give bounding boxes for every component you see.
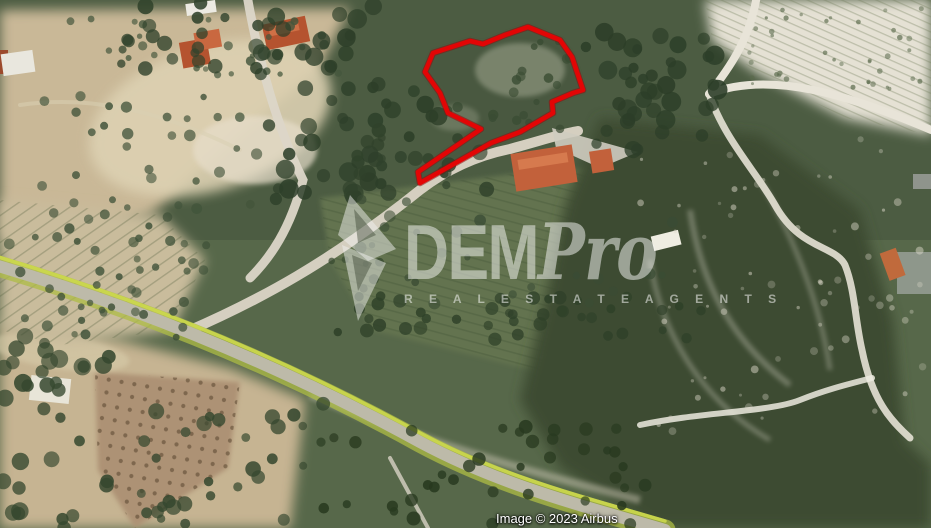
vegetation-blob — [681, 333, 691, 343]
vegetation-blob — [472, 452, 485, 465]
vegetation-blob — [196, 28, 208, 40]
vegetation-blob — [916, 247, 924, 255]
vegetation-blob — [784, 15, 789, 20]
vegetation-blob — [512, 116, 521, 125]
vegetation-blob — [131, 307, 140, 316]
vegetation-blob — [137, 489, 146, 498]
vegetation-blob — [423, 480, 433, 490]
vegetation-blob — [139, 310, 148, 319]
vegetation-blob — [512, 329, 524, 341]
vegetation-blob — [646, 103, 661, 118]
vegetation-blob — [6, 356, 20, 370]
vegetation-blob — [498, 424, 507, 433]
vegetation-blob — [91, 246, 100, 255]
vegetation-blob — [741, 287, 745, 291]
vegetation-blob — [603, 446, 611, 454]
vegetation-blob — [773, 170, 779, 176]
vegetation-blob — [343, 500, 351, 508]
vegetation-blob — [173, 334, 180, 341]
vegetation-blob — [100, 122, 108, 130]
vegetation-blob — [585, 299, 594, 308]
vegetation-blob — [867, 81, 870, 84]
vegetation-blob — [206, 491, 215, 500]
vegetation-blob — [37, 402, 50, 415]
vegetation-blob — [868, 58, 872, 62]
vegetation-blob — [192, 12, 204, 24]
vegetation-blob — [138, 61, 153, 76]
vegetation-blob — [603, 331, 613, 341]
vegetation-blob — [343, 181, 358, 196]
vegetation-blob — [509, 87, 519, 97]
vegetation-blob — [919, 363, 926, 370]
vegetation-blob — [252, 20, 263, 31]
vegetation-blob — [127, 285, 136, 294]
vegetation-blob — [666, 57, 676, 67]
vegetation-blob — [121, 102, 132, 113]
vegetation-blob — [877, 68, 883, 74]
vegetation-blob — [134, 256, 141, 263]
vegetation-blob — [762, 394, 768, 400]
vegetation-blob — [544, 295, 553, 304]
vegetation-blob — [347, 9, 367, 29]
vegetation-blob — [138, 435, 150, 447]
vegetation-blob — [319, 503, 330, 514]
vegetation-blob — [855, 305, 860, 310]
vegetation-blob — [910, 76, 915, 81]
vegetation-blob — [37, 181, 47, 191]
vegetation-blob — [897, 35, 903, 41]
vegetation-blob — [673, 230, 677, 234]
vegetation-blob — [135, 235, 143, 243]
vegetation-blob — [214, 167, 225, 178]
vegetation-blob — [851, 222, 859, 230]
vegetation-blob — [527, 291, 540, 304]
vegetation-blob — [167, 53, 179, 65]
vegetation-blob — [581, 496, 590, 505]
vegetation-blob — [202, 241, 210, 249]
vegetation-blob — [625, 141, 642, 158]
vegetation-blob — [548, 424, 561, 437]
vegetation-blob — [206, 17, 212, 23]
vegetation-blob — [95, 267, 104, 276]
vegetation-blob — [414, 321, 428, 335]
vegetation-blob — [751, 366, 759, 374]
vegetation-blob — [81, 329, 91, 339]
vegetation-blob — [341, 81, 356, 96]
vegetation-blob — [883, 8, 887, 12]
imagery-attribution: Image © 2023 Airbus — [496, 511, 618, 526]
vegetation-blob — [906, 36, 912, 42]
vegetation-blob — [381, 98, 391, 108]
vegetation-blob — [661, 319, 667, 325]
vegetation-blob — [448, 474, 459, 485]
vegetation-blob — [747, 51, 751, 55]
vegetation-blob — [328, 258, 335, 265]
vegetation-blob — [58, 305, 68, 315]
vegetation-blob — [856, 20, 861, 25]
vegetation-blob — [512, 75, 522, 85]
vegetation-blob — [405, 494, 418, 507]
vegetation-blob — [485, 302, 498, 315]
vegetation-blob — [332, 7, 347, 22]
vegetation-blob — [246, 200, 255, 209]
vegetation-blob — [390, 507, 399, 516]
vegetation-blob — [200, 94, 206, 100]
vegetation-blob — [452, 315, 461, 324]
vegetation-blob — [775, 356, 781, 362]
vegetation-blob — [78, 317, 85, 324]
vegetation-blob — [810, 347, 818, 355]
vegetation-blob — [797, 306, 800, 309]
vegetation-blob — [32, 234, 39, 241]
vegetation-blob — [411, 278, 419, 286]
vegetation-blob — [393, 294, 406, 307]
vegetation-blob — [52, 232, 62, 242]
vegetation-blob — [136, 266, 144, 274]
vegetation-blob — [640, 158, 643, 161]
vegetation-blob — [823, 51, 828, 56]
vegetation-blob — [828, 291, 832, 295]
vegetation-blob — [364, 314, 373, 323]
vegetation-blob — [438, 470, 447, 479]
vegetation-blob — [842, 335, 850, 343]
vegetation-blob — [851, 85, 856, 90]
vegetation-blob — [138, 41, 147, 50]
vegetation-blob — [229, 71, 234, 76]
vegetation-blob — [363, 261, 369, 267]
vegetation-blob — [191, 203, 202, 214]
vegetation-blob — [380, 185, 396, 201]
vegetation-blob — [214, 113, 222, 121]
vegetation-blob — [299, 422, 308, 431]
vegetation-blob — [834, 277, 841, 284]
vegetation-blob — [429, 298, 441, 310]
vegetation-blob — [534, 317, 548, 331]
vegetation-blob — [828, 175, 832, 179]
vegetation-blob — [72, 171, 80, 179]
vegetation-blob — [283, 148, 295, 160]
vegetation-blob — [573, 272, 580, 279]
vegetation-blob — [749, 272, 753, 276]
vegetation-blob — [891, 28, 896, 33]
vegetation-blob — [829, 16, 832, 19]
vegetation-blob — [369, 242, 375, 248]
vegetation-blob — [50, 377, 62, 389]
vegetation-blob — [144, 165, 153, 174]
vegetation-blob — [184, 268, 191, 275]
vegetation-blob — [777, 71, 782, 76]
vegetation-blob — [67, 17, 75, 25]
vegetation-blob — [126, 55, 132, 61]
vegetation-blob — [577, 313, 586, 322]
vegetation-blob — [704, 376, 707, 379]
vegetation-blob — [21, 314, 29, 322]
vegetation-blob — [192, 177, 199, 184]
vegetation-blob — [818, 323, 822, 327]
vegetation-blob — [639, 479, 652, 492]
vegetation-blob — [14, 374, 32, 392]
vegetation-blob — [518, 67, 527, 76]
vegetation-blob — [66, 509, 79, 522]
vegetation-blob — [894, 198, 902, 206]
vegetation-blob — [668, 306, 671, 309]
vegetation-blob — [122, 128, 133, 139]
vegetation-blob — [839, 62, 843, 66]
vegetation-blob — [174, 201, 182, 209]
vegetation-blob — [505, 309, 514, 318]
vegetation-blob — [12, 453, 29, 470]
vegetation-blob — [152, 454, 161, 463]
vegetation-blob — [165, 236, 175, 246]
vegetation-blob — [416, 308, 426, 318]
vegetation-blob — [199, 265, 209, 275]
gray-roof-top-right — [913, 174, 931, 189]
vegetation-blob — [317, 169, 330, 182]
vegetation-blob — [706, 305, 709, 308]
vegetation-blob — [203, 66, 209, 72]
vegetation-blob — [824, 19, 828, 23]
vegetation-blob — [882, 209, 885, 212]
vegetation-blob — [49, 208, 59, 218]
vegetation-blob — [146, 173, 157, 184]
vegetation-blob — [297, 185, 312, 200]
vegetation-blob — [517, 463, 525, 471]
vegetation-blob — [100, 209, 110, 219]
vegetation-blob — [276, 21, 292, 37]
vegetation-blob — [179, 297, 189, 307]
vegetation-blob — [876, 302, 884, 310]
vegetation-blob — [371, 77, 385, 91]
vegetation-blob — [151, 52, 158, 59]
vegetation-blob — [117, 60, 125, 68]
vegetation-blob — [652, 28, 668, 44]
vegetation-blob — [141, 507, 152, 518]
vegetation-blob — [858, 136, 864, 142]
vegetation-blob — [586, 312, 597, 323]
vegetation-blob — [116, 273, 123, 280]
vegetation-blob — [907, 48, 911, 52]
vegetation-blob — [879, 149, 883, 153]
vegetation-blob — [208, 59, 223, 74]
vegetation-blob — [334, 328, 342, 336]
vegetation-blob — [696, 129, 708, 141]
vegetation-blob — [267, 49, 283, 65]
vegetation-blob — [677, 204, 681, 208]
terrain-layer — [0, 0, 931, 528]
vegetation-blob — [500, 296, 511, 307]
vegetation-blob — [178, 256, 186, 264]
vegetation-blob — [537, 39, 543, 45]
vegetation-blob — [178, 323, 187, 332]
vegetation-blob — [721, 308, 728, 315]
vegetation-blob — [868, 295, 874, 301]
vegetation-blob — [761, 417, 764, 420]
vegetation-blob — [784, 76, 790, 82]
vegetation-blob — [451, 226, 462, 237]
vegetation-blob — [622, 113, 635, 126]
vegetation-blob — [718, 202, 721, 205]
vegetation-blob — [610, 472, 622, 484]
vegetation-blob — [212, 413, 225, 426]
vegetation-blob — [919, 6, 924, 11]
vegetation-blob — [619, 67, 632, 80]
vegetation-blob — [902, 317, 909, 324]
vegetation-blob — [533, 99, 539, 105]
vegetation-blob — [267, 453, 278, 464]
vegetation-blob — [168, 131, 177, 140]
vegetation-blob — [329, 433, 338, 442]
vegetation-blob — [750, 75, 755, 80]
vegetation-blob — [591, 139, 601, 149]
vegetation-blob — [69, 198, 78, 207]
vegetation-blob — [121, 34, 133, 46]
vegetation-blob — [620, 483, 629, 492]
vegetation-blob — [17, 328, 33, 344]
vegetation-blob — [124, 204, 131, 211]
vegetation-blob — [278, 514, 290, 526]
vegetation-blob — [727, 152, 733, 158]
vegetation-blob — [817, 174, 820, 177]
vegetation-blob — [298, 80, 314, 96]
vegetation-blob — [354, 303, 365, 314]
vegetation-blob — [349, 436, 361, 448]
vegetation-blob — [698, 101, 713, 116]
vegetation-blob — [373, 319, 386, 332]
vegetation-blob — [768, 281, 776, 289]
vegetation-blob — [820, 299, 827, 306]
vegetation-blob — [44, 451, 60, 467]
vegetation-blob — [71, 331, 77, 337]
vegetation-blob — [413, 229, 420, 236]
vegetation-blob — [45, 284, 54, 293]
vegetation-blob — [406, 425, 418, 437]
vegetation-blob — [277, 71, 282, 76]
vegetation-blob — [553, 291, 567, 305]
vegetation-blob — [78, 360, 90, 372]
vegetation-blob — [132, 19, 138, 25]
vegetation-blob — [658, 272, 665, 279]
vegetation-blob — [303, 134, 321, 152]
vegetation-blob — [745, 403, 753, 411]
vegetation-blob — [372, 123, 386, 137]
vegetation-blob — [659, 326, 667, 334]
vegetation-blob — [75, 91, 85, 101]
vegetation-blob — [526, 435, 539, 448]
vegetation-blob — [339, 117, 354, 132]
vegetation-blob — [442, 181, 450, 189]
vegetation-blob — [408, 85, 420, 97]
vegetation-blob — [509, 316, 519, 326]
vegetation-blob — [426, 110, 439, 123]
vegetation-blob — [279, 179, 299, 199]
vegetation-blob — [693, 284, 698, 289]
vegetation-blob — [579, 422, 592, 435]
vegetation-blob — [102, 350, 116, 364]
vegetation-blob — [728, 213, 733, 218]
vegetation-blob — [544, 452, 556, 464]
vegetation-blob — [872, 408, 877, 413]
vegetation-blob — [372, 138, 385, 151]
vegetation-blob — [544, 73, 554, 83]
vegetation-blob — [337, 28, 356, 47]
vegetation-blob — [157, 515, 165, 523]
vegetation-blob — [484, 321, 493, 330]
vegetation-blob — [42, 320, 53, 331]
vegetation-blob — [833, 229, 837, 233]
vegetation-blob — [55, 413, 65, 423]
vegetation-blob — [360, 324, 374, 338]
vegetation-blob — [886, 294, 893, 301]
vegetation-blob — [578, 443, 590, 455]
vegetation-blob — [316, 397, 330, 411]
vegetation-blob — [108, 303, 115, 310]
vegetation-blob — [527, 283, 535, 291]
vegetation-blob — [235, 112, 245, 122]
vegetation-blob — [377, 154, 386, 163]
vegetation-blob — [691, 379, 694, 382]
vegetation-blob — [15, 267, 25, 277]
vegetation-blob — [695, 395, 701, 401]
vegetation-blob — [287, 408, 300, 421]
vegetation-blob — [404, 274, 411, 281]
vegetation-blob — [241, 433, 250, 442]
vegetation-blob — [437, 248, 447, 258]
vegetation-blob — [71, 108, 80, 117]
vegetation-blob — [780, 8, 785, 13]
vegetation-blob — [233, 145, 240, 152]
vegetation-blob — [88, 128, 96, 136]
vegetation-blob — [608, 286, 618, 296]
vegetation-blob — [464, 254, 470, 260]
vegetation-blob — [184, 130, 196, 142]
vegetation-blob — [372, 297, 385, 310]
vegetation-blob — [299, 462, 307, 470]
vegetation-blob — [885, 53, 891, 59]
vegetation-blob — [64, 223, 74, 233]
vegetation-blob — [523, 489, 534, 500]
vegetation-blob — [245, 461, 261, 477]
vegetation-blob — [749, 60, 754, 65]
vegetation-blob — [181, 240, 188, 247]
vegetation-blob — [488, 486, 499, 497]
vegetation-blob — [657, 423, 661, 427]
vegetation-blob — [739, 394, 742, 397]
vegetation-blob — [917, 79, 922, 84]
vegetation-blob — [99, 478, 114, 493]
vegetation-blob — [224, 41, 233, 50]
vegetation-blob — [123, 142, 132, 151]
vegetation-blob — [769, 29, 775, 35]
vegetation-blob — [12, 481, 25, 494]
vegetation-blob — [74, 238, 81, 245]
vegetation-blob — [640, 82, 657, 99]
vegetation-blob — [509, 290, 517, 298]
vegetation-blob — [617, 501, 626, 510]
vegetation-blob — [886, 86, 889, 89]
vegetation-blob — [380, 222, 390, 232]
vegetation-blob — [137, 34, 142, 39]
vegetation-blob — [708, 79, 720, 91]
vegetation-blob — [917, 282, 923, 288]
vegetation-blob — [109, 196, 116, 203]
vegetation-blob — [251, 148, 262, 159]
vegetation-blob — [519, 420, 533, 434]
vegetation-blob — [637, 200, 644, 207]
vegetation-blob — [204, 477, 213, 486]
vegetation-blob — [163, 113, 172, 122]
vegetation-blob — [270, 193, 282, 205]
vegetation-blob — [357, 195, 367, 205]
